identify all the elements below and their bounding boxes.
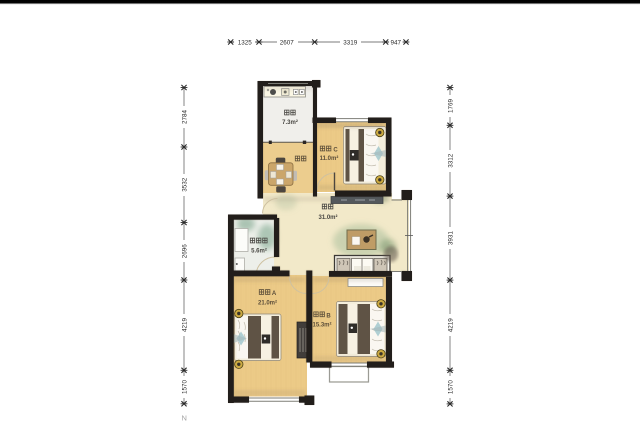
svg-text:7.3m²: 7.3m²	[282, 119, 298, 126]
svg-text:1325: 1325	[238, 39, 253, 46]
svg-text:1570: 1570	[447, 380, 454, 395]
svg-text:11.0m²: 11.0m²	[320, 155, 339, 162]
svg-text:21.0m²: 21.0m²	[258, 299, 277, 306]
svg-text:C: C	[333, 148, 338, 154]
svg-text:A: A	[272, 291, 277, 297]
svg-text:1769: 1769	[447, 99, 454, 114]
svg-text:N: N	[182, 414, 187, 423]
svg-text:4219: 4219	[447, 318, 454, 333]
svg-text:3312: 3312	[447, 153, 454, 168]
svg-text:2607: 2607	[280, 39, 295, 46]
svg-text:947: 947	[391, 39, 402, 46]
svg-text:5.6m²: 5.6m²	[251, 248, 267, 255]
svg-text:1570: 1570	[181, 380, 188, 395]
svg-text:31.0m²: 31.0m²	[318, 214, 337, 221]
svg-text:3319: 3319	[343, 39, 358, 46]
svg-text:15.3m²: 15.3m²	[312, 322, 331, 329]
svg-text:2784: 2784	[181, 110, 188, 125]
svg-text:2696: 2696	[181, 244, 188, 259]
svg-text:3532: 3532	[181, 177, 188, 192]
svg-text:B: B	[326, 313, 331, 319]
svg-text:3931: 3931	[447, 231, 454, 246]
svg-text:4219: 4219	[181, 318, 188, 333]
